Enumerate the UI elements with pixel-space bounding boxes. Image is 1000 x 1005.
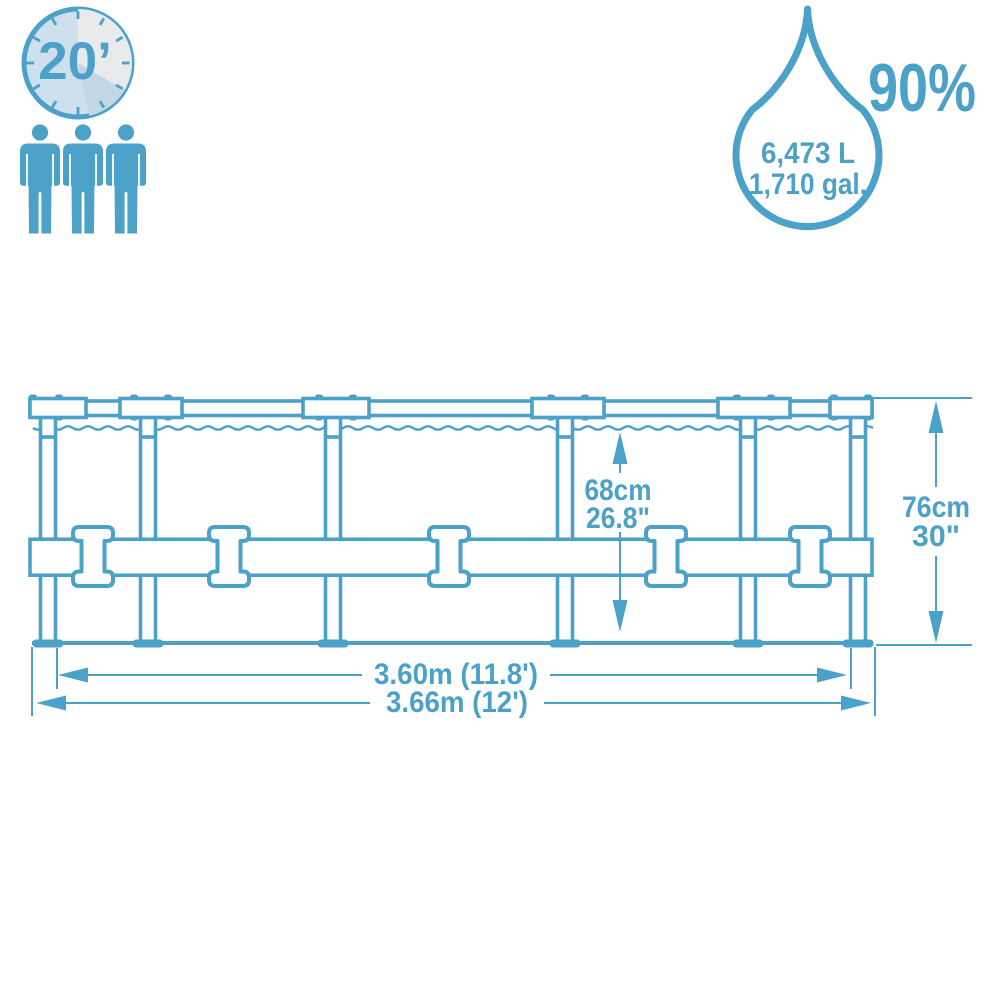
svg-text:3.66m (12'): 3.66m (12'): [386, 686, 528, 719]
svg-text:6,473 L: 6,473 L: [761, 137, 855, 170]
svg-text:30": 30": [912, 520, 960, 553]
svg-text:90%: 90%: [868, 50, 976, 126]
svg-text:20’: 20’: [38, 32, 112, 91]
svg-text:1,710 gal.: 1,710 gal.: [749, 168, 867, 201]
svg-text:26.8": 26.8": [586, 502, 650, 535]
